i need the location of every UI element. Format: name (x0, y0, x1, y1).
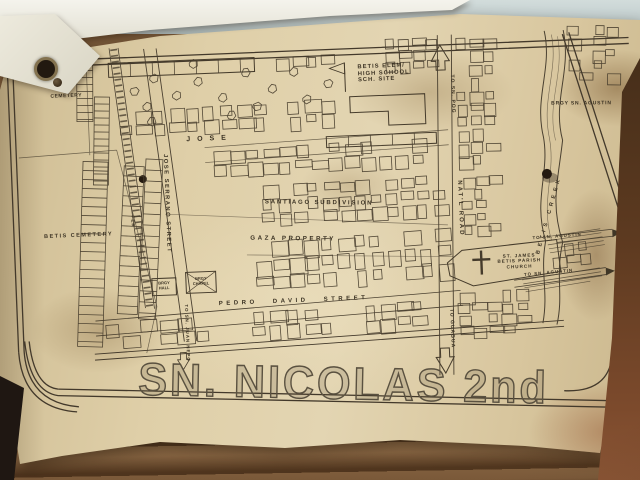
map-title: SN. NICOLAS 2nd (138, 354, 550, 415)
pin (53, 78, 62, 87)
grommet (34, 57, 58, 81)
map-bottom-zone: SN. NICOLAS 2nd (0, 0, 640, 480)
photo-of-barangay-map: CEMETERY BETIS CEMETERY JOSE JOSE SERRAN… (0, 0, 640, 480)
